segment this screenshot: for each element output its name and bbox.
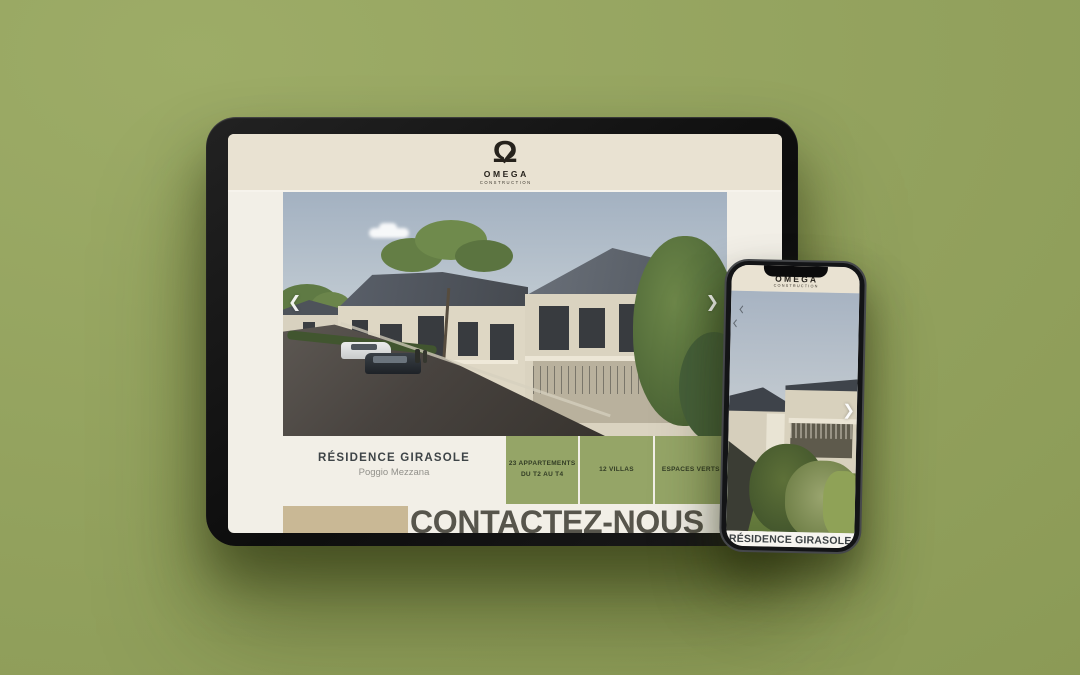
pine-tree — [381, 220, 521, 296]
phone-screen: OMEGA CONSTRUCTION — [726, 265, 860, 549]
feature-badges: 23 APPARTEMENTS DU T2 AU T4 12 VILLAS ES… — [506, 436, 727, 504]
phone-notch — [764, 265, 828, 277]
tablet-site-header: Ω OMEGA CONSTRUCTION — [228, 134, 782, 192]
logo-tagline: CONSTRUCTION — [478, 180, 531, 185]
window — [490, 324, 514, 360]
balcony-railing — [790, 423, 852, 439]
phone-hero-carousel-image: ❯ — [726, 291, 859, 534]
tall-grass — [822, 471, 859, 534]
tablet-screen: Ω OMEGA CONSTRUCTION — [228, 134, 782, 533]
omega-logo-icon: Ω — [493, 135, 518, 169]
phone-carousel-next-icon[interactable]: ❯ — [840, 399, 857, 421]
feature-badge-green-spaces: ESPACES VERTS — [655, 436, 727, 504]
pine-canopy — [455, 240, 513, 272]
decorative-beige-block — [283, 506, 408, 533]
minivan — [365, 353, 421, 374]
logo-name: OMEGA — [481, 169, 529, 179]
feature-line: 23 APPARTEMENTS — [509, 459, 576, 470]
window — [579, 308, 605, 348]
feature-line: ESPACES VERTS — [662, 465, 720, 476]
roof — [729, 387, 788, 414]
window — [458, 322, 478, 356]
contact-section: CONTACTEZ-NOUS — [228, 504, 782, 533]
phone-project-caption: RÉSIDENCE GIRASOLE — [726, 531, 854, 549]
car-window — [373, 356, 407, 363]
project-location: Poggio Mezzana — [283, 467, 505, 478]
contact-cta[interactable]: CONTACTEZ-NOUS — [410, 504, 704, 533]
window — [539, 306, 569, 350]
project-info-row: RÉSIDENCE GIRASOLE Poggio Mezzana 23 APP… — [283, 436, 727, 504]
person — [423, 350, 427, 363]
project-info: RÉSIDENCE GIRASOLE Poggio Mezzana — [283, 436, 505, 504]
scene-background: Ω OMEGA CONSTRUCTION — [0, 0, 1080, 675]
hero-carousel-image: ❮ ❯ — [283, 192, 727, 436]
car-window — [351, 344, 377, 350]
carousel-prev-icon[interactable]: ❮ — [286, 292, 303, 312]
feature-line: 12 VILLAS — [599, 465, 634, 476]
phone-device: OMEGA CONSTRUCTION — [719, 259, 867, 555]
carousel-next-icon[interactable]: ❯ — [704, 292, 721, 312]
project-title: RÉSIDENCE GIRASOLE — [283, 452, 505, 464]
feature-line: DU T2 AU T4 — [521, 470, 563, 481]
omega-logo: Ω — [493, 135, 518, 169]
tablet-device: Ω OMEGA CONSTRUCTION — [206, 117, 798, 546]
feature-badge-apartments: 23 APPARTEMENTS DU T2 AU T4 — [506, 436, 578, 504]
person — [415, 349, 420, 363]
feature-badge-villas: 12 VILLAS — [580, 436, 652, 504]
